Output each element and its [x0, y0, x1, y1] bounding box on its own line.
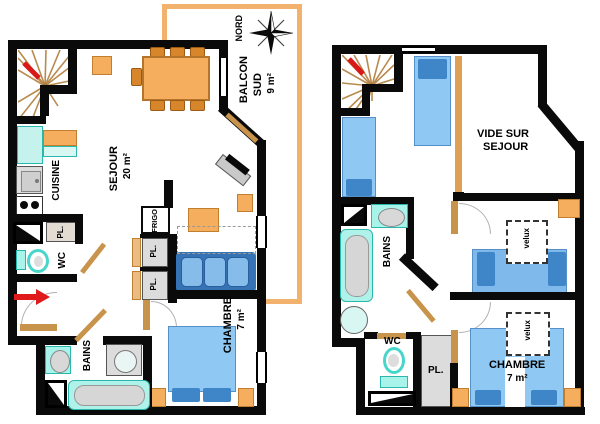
compass-label: NORD	[235, 15, 244, 42]
room-area-balcon: 9 m²	[267, 73, 277, 94]
window	[256, 352, 267, 383]
sink-icon	[340, 306, 368, 334]
wall	[340, 108, 370, 116]
window	[402, 46, 435, 53]
pillow	[418, 59, 447, 79]
window	[219, 58, 228, 96]
room-area-chambre: 7 m²	[237, 309, 247, 330]
room-label-closet1: PL.	[57, 226, 65, 238]
room-area-sejour: 20 m²	[123, 153, 133, 179]
pillow	[346, 179, 372, 196]
slope-symbol-icon	[341, 204, 367, 226]
room-label-vide-line2: SEJOUR	[483, 142, 528, 153]
wall	[399, 253, 439, 291]
wall	[575, 141, 584, 415]
pillow	[475, 390, 501, 405]
wall	[356, 338, 365, 415]
nightstand	[558, 199, 580, 218]
room-label-closet2: PL.	[150, 245, 158, 257]
wall	[332, 45, 341, 346]
room-area-chambre-upper: 7 m²	[507, 374, 528, 384]
wall	[356, 407, 585, 415]
room-label-sejour: SEJOUR	[109, 146, 120, 191]
room-label-balcon-sud: SUD	[253, 73, 264, 96]
velux-label: velux	[523, 228, 531, 248]
wall	[332, 45, 547, 54]
entrance-arrow-icon	[14, 289, 50, 305]
slope-symbol-icon	[368, 391, 416, 406]
room-label-balcon: BALCON	[239, 56, 250, 103]
toilet-icon	[380, 347, 408, 390]
room-label-bains: BAINS	[83, 340, 93, 371]
sofa-bed-outline	[177, 226, 256, 254]
window	[256, 216, 267, 248]
slope-symbol-icon	[45, 380, 67, 408]
wall	[364, 332, 378, 339]
bathtub-icon	[340, 229, 373, 302]
room-label-closet3: PL.	[150, 278, 158, 290]
slope-symbol-icon	[13, 222, 43, 244]
room-label-chambre: CHAMBRE	[223, 297, 234, 353]
floor-plan-canvas: NORD	[0, 0, 600, 424]
sink-icon	[371, 204, 408, 228]
room-label-frigo: FRIGO	[151, 209, 159, 233]
velux-label: velux	[524, 320, 532, 340]
door-leaf	[451, 201, 458, 234]
room-label-closet-upper: PL.	[428, 366, 444, 376]
pillow	[477, 252, 495, 286]
compass-icon	[248, 10, 294, 56]
room-label-bains-upper: BAINS	[383, 236, 393, 267]
nightstand	[564, 388, 581, 407]
door-leaf	[451, 330, 458, 363]
door-leaf	[406, 289, 436, 323]
wall	[538, 45, 547, 107]
pillow	[548, 252, 566, 286]
door-swing-arc	[459, 203, 491, 234]
wall	[450, 292, 580, 300]
pillow	[531, 390, 557, 405]
nightstand	[452, 388, 469, 407]
room-label-chambre-upper: CHAMBRE	[489, 360, 545, 371]
room-label-cuisine: CUISINE	[52, 160, 62, 201]
room-label-vide-line1: VIDE SUR	[477, 129, 529, 140]
mezzanine-railing	[455, 56, 462, 196]
room-label-wc-upper: WC	[384, 337, 401, 347]
room-label-wc: WC	[58, 252, 68, 269]
